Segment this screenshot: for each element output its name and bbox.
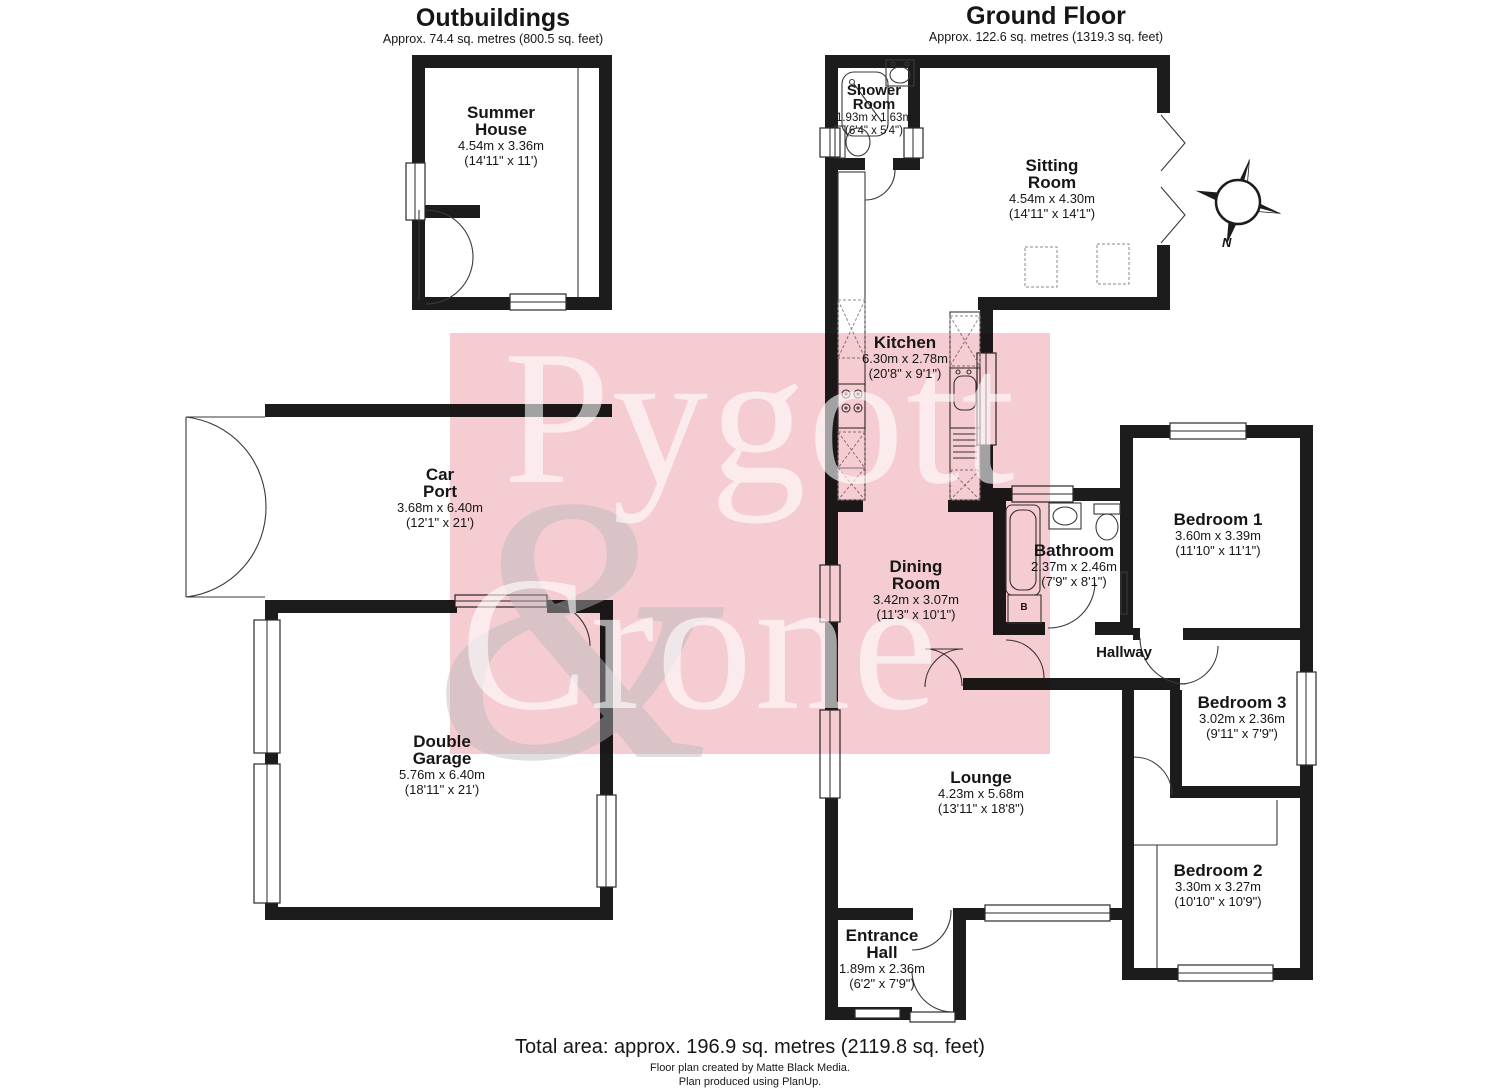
room-label-hallway: Hallway xyxy=(1096,644,1152,661)
room-label-lounge: Lounge 4.23m x 5.68m (13'11" x 18'8") xyxy=(938,769,1024,816)
room-label-kitchen: Kitchen 6.30m x 2.78m (20'8" x 9'1") xyxy=(862,334,948,381)
room-label-car-port: Car Port 3.68m x 6.40m (12'1" x 21') xyxy=(397,466,483,530)
credit-line-2: Plan produced using PlanUp. xyxy=(679,1076,821,1088)
room-label-summer-house: Summer House 4.54m x 3.36m (14'11" x 11'… xyxy=(458,104,544,168)
room-label-double-garage: Double Garage 5.76m x 6.40m (18'11" x 21… xyxy=(399,733,485,797)
room-label-bedroom-2: Bedroom 2 3.30m x 3.27m (10'10" x 10'9") xyxy=(1174,862,1263,909)
room-label-bathroom: Bathroom 2.37m x 2.46m (7'9" x 8'1") xyxy=(1031,542,1117,589)
outbuildings-title: Outbuildings xyxy=(416,4,570,33)
bathroom-sink-icon xyxy=(1049,503,1081,529)
ground-floor-title: Ground Floor xyxy=(966,2,1126,31)
room-label-bedroom-3: Bedroom 3 3.02m x 2.36m (9'11" x 7'9") xyxy=(1198,694,1287,741)
room-label-entrance-hall: Entrance Hall 1.89m x 2.36m (6'2" x 7'9"… xyxy=(839,927,925,991)
credit-line-1: Floor plan created by Matte Black Media. xyxy=(650,1062,850,1074)
floorplan-page: & Pygott Crone Outbuildings Approx. 74.4… xyxy=(0,0,1500,1091)
compass-icon xyxy=(1184,148,1292,256)
total-area-text: Total area: approx. 196.9 sq. metres (21… xyxy=(515,1036,985,1059)
boiler-label: B xyxy=(1020,602,1027,613)
room-label-shower-room: Shower Room 1.93m x 1.63m (6'4" x 5'4") xyxy=(836,84,912,138)
watermark-tint xyxy=(450,333,1050,754)
outbuildings-subtitle: Approx. 74.4 sq. metres (800.5 sq. feet) xyxy=(383,32,603,46)
compass-north-label: N xyxy=(1222,235,1231,250)
room-label-bedroom-1: Bedroom 1 3.60m x 3.39m (11'10" x 11'1") xyxy=(1174,511,1263,558)
room-label-dining-room: Dining Room 3.42m x 3.07m (11'3" x 10'1"… xyxy=(873,558,959,622)
ground-floor-subtitle: Approx. 122.6 sq. metres (1319.3 sq. fee… xyxy=(929,30,1163,44)
room-label-sitting-room: Sitting Room 4.54m x 4.30m (14'11" x 14'… xyxy=(1009,157,1095,221)
bathroom-toilet-icon xyxy=(1094,504,1120,540)
